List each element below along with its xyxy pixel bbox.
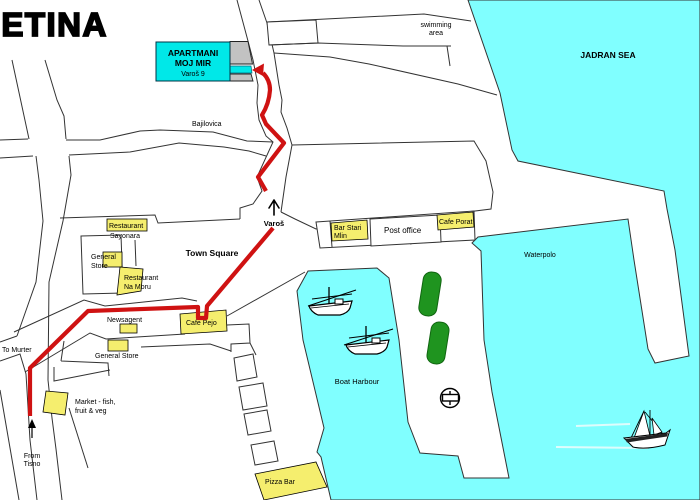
svg-text:swimming: swimming (420, 22, 451, 29)
svg-text:BETINA: BETINA (0, 6, 108, 43)
svg-text:Bar Stari: Bar Stari (334, 225, 362, 232)
svg-text:General: General (91, 254, 116, 261)
svg-text:Bajilovica: Bajilovica (192, 121, 222, 128)
svg-text:Mlin: Mlin (334, 233, 347, 240)
svg-text:fruit & veg: fruit & veg (75, 408, 107, 415)
svg-text:Pizza Bar: Pizza Bar (265, 479, 296, 486)
svg-text:APARTMANI: APARTMANI (168, 48, 218, 58)
svg-text:General Store: General Store (95, 353, 139, 360)
svg-text:Na Moru: Na Moru (124, 284, 151, 291)
svg-text:Store: Store (91, 263, 108, 270)
svg-text:Cafe Porat: Cafe Porat (439, 219, 473, 226)
svg-text:Varoš 9: Varoš 9 (181, 71, 205, 78)
svg-text:area: area (429, 30, 443, 37)
svg-text:Varoš: Varoš (264, 219, 284, 228)
svg-text:Boat Harbour: Boat Harbour (335, 377, 380, 386)
svg-text:Newsagent: Newsagent (107, 317, 142, 324)
svg-text:Post office: Post office (384, 226, 422, 235)
svg-text:Market - fish,: Market - fish, (75, 399, 116, 406)
svg-text:Town Square: Town Square (186, 248, 239, 258)
svg-text:To Murter: To Murter (2, 347, 32, 354)
svg-text:MOJ MIR: MOJ MIR (175, 58, 211, 68)
svg-text:Restaurant: Restaurant (124, 275, 158, 282)
svg-text:JADRAN SEA: JADRAN SEA (580, 50, 635, 60)
svg-text:Sayonara: Sayonara (110, 233, 140, 240)
svg-text:Cafe Pejo: Cafe Pejo (186, 320, 217, 327)
svg-text:Restaurant: Restaurant (109, 223, 143, 230)
svg-text:Waterpolo: Waterpolo (524, 252, 556, 259)
svg-text:Tisno: Tisno (24, 461, 41, 468)
svg-text:From: From (24, 453, 41, 460)
